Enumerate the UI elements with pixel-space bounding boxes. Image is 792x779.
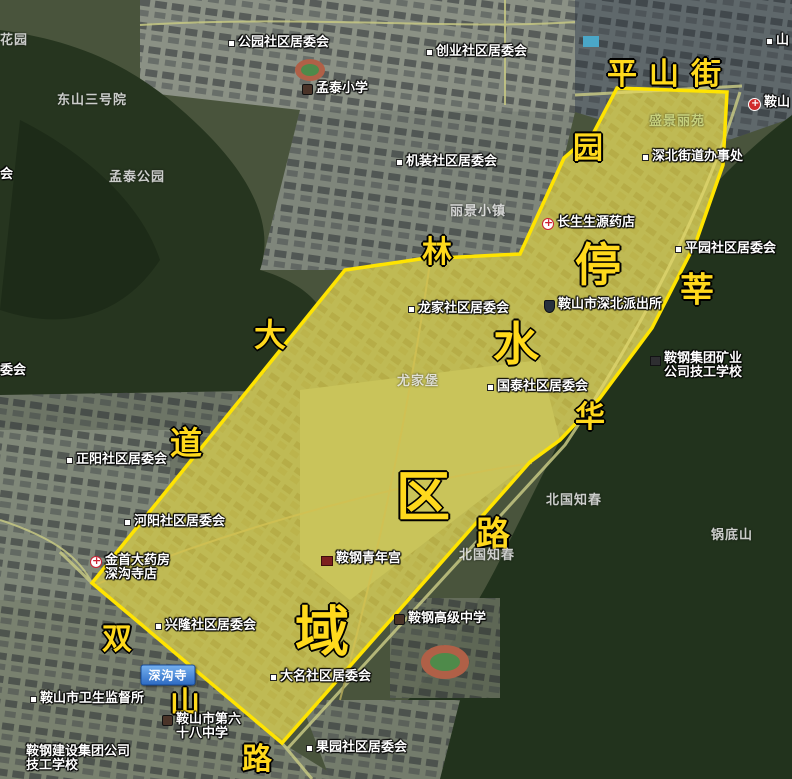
pharmacy-icon [542, 218, 554, 230]
poi-label[interactable]: 深北街道办事处 [642, 150, 743, 164]
dot-icon [675, 246, 682, 253]
poi-label-text: 长生生源药店 [557, 216, 635, 230]
poi-label[interactable]: 山 [766, 34, 789, 48]
street-label: 域 [295, 588, 349, 667]
poi-label[interactable]: 鞍钢高级中学 [394, 612, 486, 626]
poi-label-text: 鞍山 [764, 96, 790, 110]
poi-label[interactable]: 龙家社区居委会 [408, 302, 509, 316]
area-label: 东山三号院 [57, 89, 127, 108]
poi-label[interactable]: 会 [0, 168, 13, 182]
poi-label[interactable]: 委会 [0, 364, 26, 378]
poi-label-text: 国泰社区居委会 [497, 380, 588, 394]
dot-icon [124, 519, 131, 526]
police-icon [544, 300, 555, 313]
dot-icon [228, 40, 235, 47]
poi-label[interactable]: 公园社区居委会 [228, 36, 329, 50]
area-label: 北国知春 [459, 544, 515, 563]
street-label: 莘 [680, 263, 714, 312]
poi-label[interactable]: 鞍山市深北派出所 [544, 298, 662, 313]
street-label: 停 [575, 229, 621, 295]
dot-icon [396, 159, 403, 166]
poi-label[interactable]: 鞍山市卫生监督所 [30, 692, 144, 706]
street-label: 水 [493, 308, 539, 374]
poi-label-text: 孟泰小学 [316, 82, 368, 96]
street-label: 园 [573, 123, 603, 167]
poi-label-text: 正阳社区居委会 [76, 453, 167, 467]
street-label: 华 [575, 392, 605, 436]
area-label: 孟泰公园 [109, 166, 165, 185]
poi-label-text: 公园社区居委会 [238, 36, 329, 50]
poi-label-text: 技工学校 [26, 759, 130, 773]
poi-label-text: 创业社区居委会 [436, 45, 527, 59]
poi-label[interactable]: 机装社区居委会 [396, 155, 497, 169]
pharmacy-icon [90, 556, 102, 568]
dot-icon [642, 154, 649, 161]
poi-label-text: 鞍钢建设集团公司 [26, 745, 130, 759]
poi-label-text: 委会 [0, 364, 26, 378]
poi-label-text: 会 [0, 168, 13, 182]
dot-icon [487, 384, 494, 391]
school-icon [394, 614, 405, 625]
street-label: 路 [242, 734, 272, 778]
area-label: 锅底山 [711, 524, 753, 543]
street-label: 区 [396, 453, 450, 532]
street-label: 平山街 [607, 49, 733, 93]
labels-layer: 平山街园林停水区域莘华路大道双山路公园社区居委会创业社区居委会孟泰小学机装社区居… [0, 0, 792, 779]
poi-label-text: 十八中学 [176, 727, 241, 741]
area-label: 花园 [0, 29, 28, 48]
poi-label[interactable]: 果园社区居委会 [306, 741, 407, 755]
dot-icon [270, 674, 277, 681]
poi-label[interactable]: 创业社区居委会 [426, 45, 527, 59]
dot-icon [155, 623, 162, 630]
area-label: 北国知春 [546, 489, 602, 508]
poi-label[interactable]: 平园社区居委会 [675, 242, 776, 256]
poi-label[interactable]: 鞍钢集团矿业公司技工学校 [650, 352, 742, 380]
poi-label-text: 鞍钢集团矿业 [664, 352, 742, 366]
poi-label-text: 河阳社区居委会 [134, 515, 225, 529]
poi-label[interactable]: 兴隆社区居委会 [155, 619, 256, 633]
youth-icon [321, 556, 333, 566]
poi-label-text: 鞍山市深北派出所 [558, 298, 662, 312]
dot-icon [306, 745, 313, 752]
map-canvas[interactable]: 平山街园林停水区域莘华路大道双山路公园社区居委会创业社区居委会孟泰小学机装社区居… [0, 0, 792, 779]
area-label: 丽景小镇 [450, 200, 506, 219]
poi-label-text: 龙家社区居委会 [418, 302, 509, 316]
poi-label[interactable]: 鞍钢建设集团公司技工学校 [26, 745, 130, 773]
street-label: 双 [102, 614, 132, 658]
poi-label-text: 鞍钢青年宫 [336, 552, 401, 566]
poi-label[interactable]: 长生生源药店 [542, 216, 635, 230]
poi-label-text: 机装社区居委会 [406, 155, 497, 169]
poi-label[interactable]: 鞍钢青年宫 [321, 552, 401, 566]
dot-icon [766, 38, 773, 45]
poi-label[interactable]: 正阳社区居委会 [66, 453, 167, 467]
place-badge[interactable]: 深沟寺 [140, 665, 195, 686]
poi-label[interactable]: 国泰社区居委会 [487, 380, 588, 394]
dot-icon [408, 306, 415, 313]
poi-label-text: 大名社区居委会 [280, 670, 371, 684]
area-label: 尤家堡 [397, 370, 439, 389]
dot-icon [426, 49, 433, 56]
poi-label-text: 平园社区居委会 [685, 242, 776, 256]
poi-label[interactable]: 金首大药房深沟寺店 [90, 554, 170, 582]
poi-label[interactable]: 大名社区居委会 [270, 670, 371, 684]
poi-label[interactable]: 鞍山市第六十八中学 [162, 713, 241, 741]
poi-label-text: 山 [776, 34, 789, 48]
street-label: 道 [170, 418, 202, 464]
hospital-icon [748, 98, 761, 111]
dot-icon [30, 696, 37, 703]
school-icon [162, 715, 173, 726]
poi-label[interactable]: 鞍山 [748, 96, 790, 111]
street-label: 林 [422, 227, 452, 271]
poi-label-text: 鞍山市卫生监督所 [40, 692, 144, 706]
poi-label[interactable]: 孟泰小学 [302, 82, 368, 96]
area-label: 盛景丽苑 [649, 110, 705, 129]
poi-label-text: 深北街道办事处 [652, 150, 743, 164]
poi-label-text: 鞍钢高级中学 [408, 612, 486, 626]
poi-label-text: 深沟寺店 [105, 568, 170, 582]
building-icon [650, 356, 661, 366]
poi-label[interactable]: 河阳社区居委会 [124, 515, 225, 529]
poi-label-text: 鞍山市第六 [176, 713, 241, 727]
poi-label-text: 兴隆社区居委会 [165, 619, 256, 633]
poi-label-text: 果园社区居委会 [316, 741, 407, 755]
street-label: 大 [254, 310, 286, 356]
school-icon [302, 84, 313, 95]
poi-label-text: 公司技工学校 [664, 366, 742, 380]
poi-label-text: 金首大药房 [105, 554, 170, 568]
dot-icon [66, 457, 73, 464]
